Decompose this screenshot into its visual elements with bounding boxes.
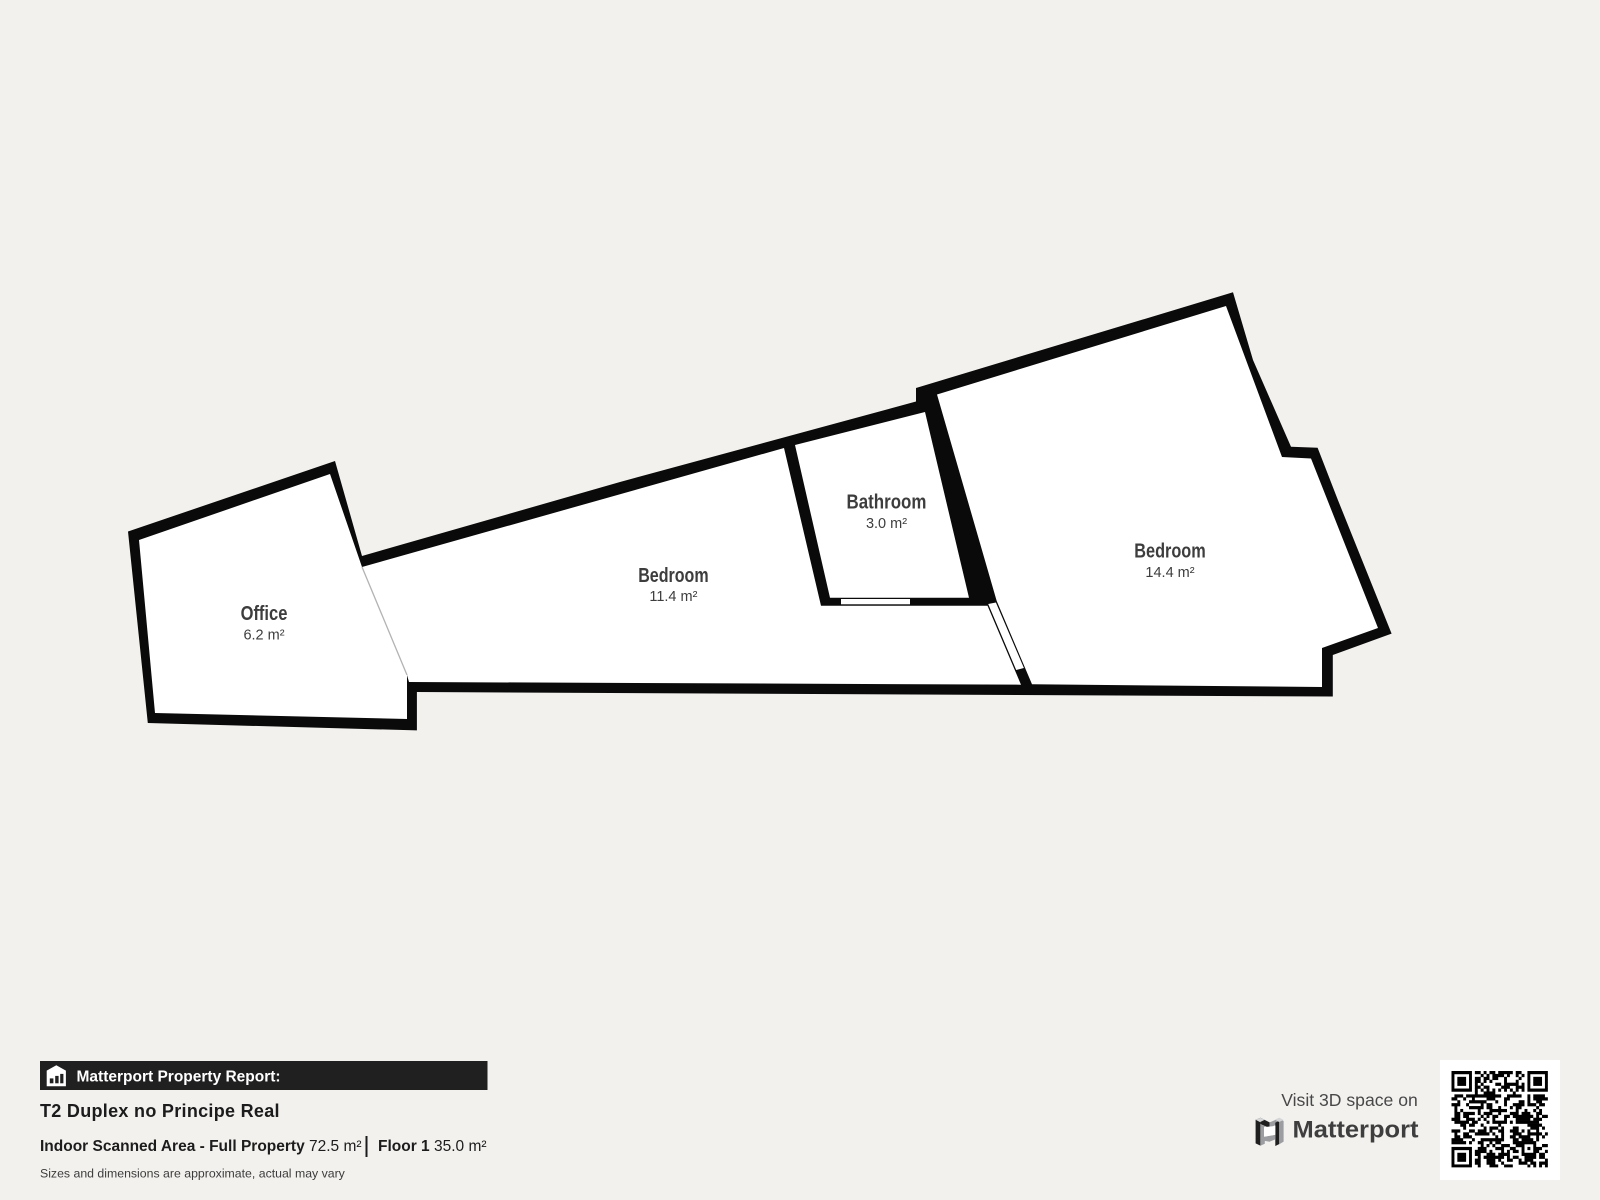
svg-text:6.2 m²: 6.2 m² [243, 628, 284, 644]
svg-text:Indoor Scanned Area - Full Pro: Indoor Scanned Area - Full Property 72.5… [40, 1138, 362, 1155]
svg-text:3.0 m²: 3.0 m² [866, 516, 907, 532]
svg-text:Bedroom: Bedroom [638, 565, 708, 587]
svg-text:Sizes and dimensions are appro: Sizes and dimensions are approximate, ac… [40, 1167, 346, 1181]
svg-text:Floor 1 35.0 m²: Floor 1 35.0 m² [378, 1138, 487, 1155]
svg-text:Matterport: Matterport [1293, 1116, 1419, 1143]
svg-text:Office: Office [241, 603, 288, 625]
svg-text:11.4 m²: 11.4 m² [649, 589, 697, 605]
svg-text:14.4 m²: 14.4 m² [1145, 565, 1194, 581]
svg-text:Matterport Property Report:: Matterport Property Report: [77, 1068, 281, 1085]
svg-text:T2 Duplex no Principe Real: T2 Duplex no Principe Real [40, 1101, 280, 1121]
svg-text:Visit 3D space on: Visit 3D space on [1281, 1090, 1418, 1110]
svg-text:Bedroom: Bedroom [1134, 541, 1206, 563]
svg-text:Bathroom: Bathroom [847, 492, 927, 514]
